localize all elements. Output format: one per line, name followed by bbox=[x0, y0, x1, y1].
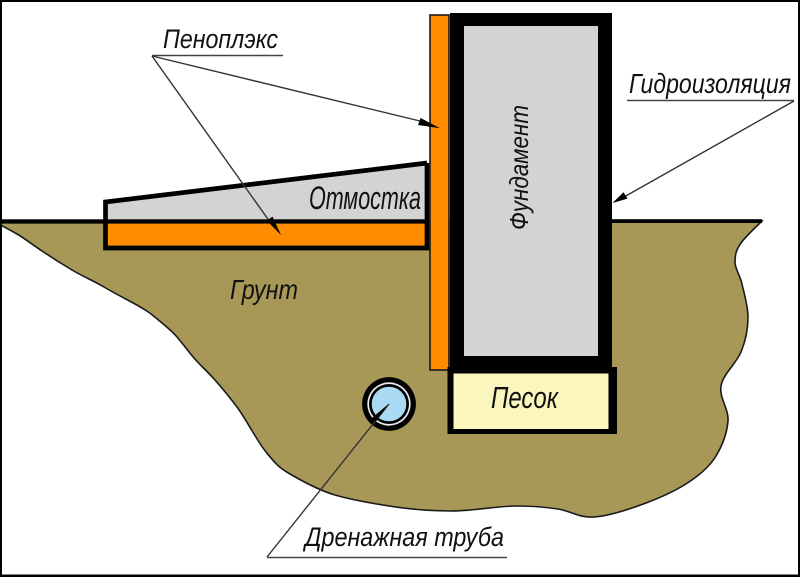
svg-text:Фундамент: Фундамент bbox=[504, 105, 534, 230]
svg-text:Отмостка: Отмостка bbox=[309, 180, 421, 216]
svg-text:Дренажная труба: Дренажная труба bbox=[302, 522, 504, 552]
svg-text:Пеноплэкс: Пеноплэкс bbox=[163, 24, 278, 54]
svg-text:Грунт: Грунт bbox=[230, 274, 298, 305]
svg-text:Гидроизоляция: Гидроизоляция bbox=[629, 68, 791, 99]
svg-text:Песок: Песок bbox=[491, 380, 559, 415]
